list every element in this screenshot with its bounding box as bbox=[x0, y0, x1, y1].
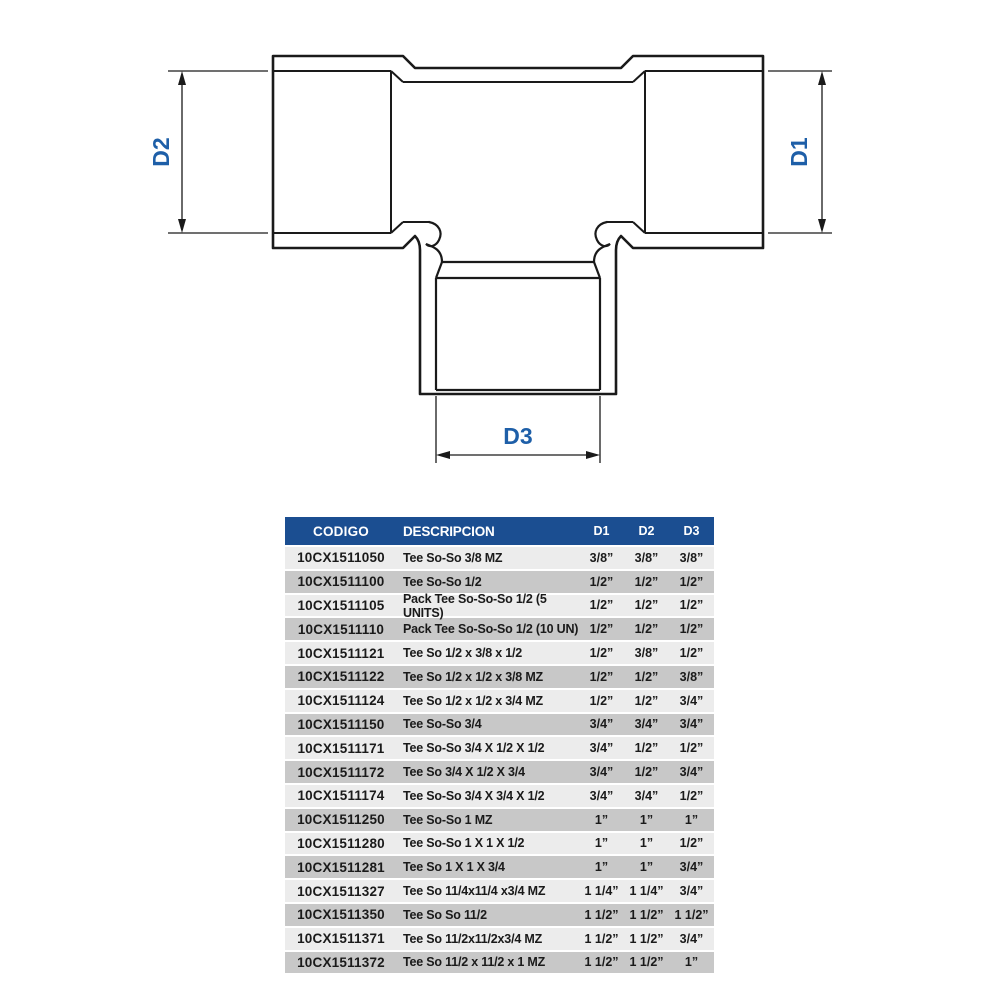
table-row: 10CX1511105 Pack Tee So-So-So 1/2 (5 UNI… bbox=[285, 595, 714, 619]
cell-d3: 3/4” bbox=[669, 884, 714, 898]
tee-fitting-diagram: D2 D1 D3 bbox=[0, 0, 1000, 500]
table-row: 10CX1511281 Tee So 1 X 1 X 3/4 1” 1” 3/4… bbox=[285, 856, 714, 880]
cell-d1: 3/8” bbox=[579, 551, 624, 565]
cell-descripcion: Pack Tee So-So-So 1/2 (10 UN) bbox=[397, 622, 579, 636]
table-row: 10CX1511122 Tee So 1/2 x 1/2 x 3/8 MZ 1/… bbox=[285, 666, 714, 690]
cell-d1: 1/2” bbox=[579, 646, 624, 660]
table-row: 10CX1511050 Tee So-So 3/8 MZ 3/8” 3/8” 3… bbox=[285, 547, 714, 571]
cell-codigo: 10CX1511172 bbox=[285, 765, 397, 780]
cell-codigo: 10CX1511371 bbox=[285, 931, 397, 946]
cell-d2: 3/8” bbox=[624, 551, 669, 565]
cell-codigo: 10CX1511372 bbox=[285, 955, 397, 970]
cell-codigo: 10CX1511281 bbox=[285, 860, 397, 875]
cell-d1: 1” bbox=[579, 860, 624, 874]
cell-d3: 1/2” bbox=[669, 789, 714, 803]
cell-d3: 3/4” bbox=[669, 860, 714, 874]
cell-d2: 1/2” bbox=[624, 575, 669, 589]
header-descripcion: DESCRIPCION bbox=[397, 524, 579, 539]
cell-d1: 3/4” bbox=[579, 789, 624, 803]
cell-d1: 1 1/2” bbox=[579, 932, 624, 946]
cell-d3: 1 1/2” bbox=[669, 908, 714, 922]
table-row: 10CX1511250 Tee So-So 1 MZ 1” 1” 1” bbox=[285, 809, 714, 833]
table-row: 10CX1511174 Tee So-So 3/4 X 3/4 X 1/2 3/… bbox=[285, 785, 714, 809]
cell-d2: 1/2” bbox=[624, 741, 669, 755]
cell-codigo: 10CX1511050 bbox=[285, 550, 397, 565]
table-row: 10CX1511172 Tee So 3/4 X 1/2 X 3/4 3/4” … bbox=[285, 761, 714, 785]
left-socket-bore bbox=[273, 71, 403, 233]
cell-d1: 3/4” bbox=[579, 717, 624, 731]
cell-d3: 1/2” bbox=[669, 836, 714, 850]
tee-outer-contour bbox=[273, 56, 763, 394]
page: D2 D1 D3 CODIGO DESCRIPCION D1 D2 D3 1 bbox=[0, 0, 1000, 1000]
cell-d2: 1/2” bbox=[624, 598, 669, 612]
cell-descripcion: Tee So-So 3/4 X 3/4 X 1/2 bbox=[397, 789, 579, 803]
cell-d2: 1 1/2” bbox=[624, 955, 669, 969]
table-row: 10CX1511280 Tee So-So 1 X 1 X 1/2 1” 1” … bbox=[285, 833, 714, 857]
cell-d3: 3/8” bbox=[669, 551, 714, 565]
cell-d2: 3/4” bbox=[624, 717, 669, 731]
cell-descripcion: Tee So-So 1/2 bbox=[397, 575, 579, 589]
cell-descripcion: Tee So 11/2 x 11/2 x 1 MZ bbox=[397, 955, 579, 969]
cell-d1: 3/4” bbox=[579, 741, 624, 755]
cell-descripcion: Tee So 1/2 x 1/2 x 3/8 MZ bbox=[397, 670, 579, 684]
cell-codigo: 10CX1511121 bbox=[285, 646, 397, 661]
cell-descripcion: Tee So-So 3/8 MZ bbox=[397, 551, 579, 565]
cell-d3: 3/4” bbox=[669, 932, 714, 946]
cell-d1: 1” bbox=[579, 813, 624, 827]
d2-dimension bbox=[168, 71, 268, 233]
table-header-row: CODIGO DESCRIPCION D1 D2 D3 bbox=[285, 517, 714, 547]
cell-d3: 1” bbox=[669, 813, 714, 827]
spec-table: CODIGO DESCRIPCION D1 D2 D3 10CX1511050 … bbox=[285, 517, 714, 975]
cell-d1: 1” bbox=[579, 836, 624, 850]
cell-descripcion: Tee So 11/4x11/4 x3/4 MZ bbox=[397, 884, 579, 898]
header-d2: D2 bbox=[624, 524, 669, 538]
header-codigo: CODIGO bbox=[285, 524, 397, 539]
cell-d3: 1” bbox=[669, 955, 714, 969]
cell-d2: 1/2” bbox=[624, 670, 669, 684]
cell-descripcion: Tee So 1 X 1 X 3/4 bbox=[397, 860, 579, 874]
cell-codigo: 10CX1511280 bbox=[285, 836, 397, 851]
cell-codigo: 10CX1511327 bbox=[285, 884, 397, 899]
table-row: 10CX1511124 Tee So 1/2 x 1/2 x 3/4 MZ 1/… bbox=[285, 690, 714, 714]
cell-d2: 1” bbox=[624, 860, 669, 874]
table-row: 10CX1511327 Tee So 11/4x11/4 x3/4 MZ 1 1… bbox=[285, 880, 714, 904]
cell-d3: 1/2” bbox=[669, 598, 714, 612]
cell-d2: 1/2” bbox=[624, 694, 669, 708]
cell-d2: 3/4” bbox=[624, 789, 669, 803]
cell-d2: 1” bbox=[624, 813, 669, 827]
cell-d3: 1/2” bbox=[669, 575, 714, 589]
crotch-curls bbox=[426, 222, 610, 262]
cell-descripcion: Pack Tee So-So-So 1/2 (5 UNITS) bbox=[397, 592, 579, 620]
cell-codigo: 10CX1511150 bbox=[285, 717, 397, 732]
cell-descripcion: Tee So So 11/2 bbox=[397, 908, 579, 922]
body-bore-lines bbox=[403, 82, 633, 222]
cell-codigo: 10CX1511250 bbox=[285, 812, 397, 827]
cell-d3: 3/4” bbox=[669, 694, 714, 708]
cell-d1: 1 1/4” bbox=[579, 884, 624, 898]
cell-codigo: 10CX1511350 bbox=[285, 907, 397, 922]
cell-d3: 1/2” bbox=[669, 646, 714, 660]
table-row: 10CX1511371 Tee So 11/2x11/2x3/4 MZ 1 1/… bbox=[285, 928, 714, 952]
cell-descripcion: Tee So 11/2x11/2x3/4 MZ bbox=[397, 932, 579, 946]
cell-d3: 1/2” bbox=[669, 741, 714, 755]
cell-descripcion: Tee So 1/2 x 1/2 x 3/4 MZ bbox=[397, 694, 579, 708]
d1-label: D1 bbox=[786, 137, 812, 167]
cell-d1: 1/2” bbox=[579, 598, 624, 612]
table-row: 10CX1511150 Tee So-So 3/4 3/4” 3/4” 3/4” bbox=[285, 714, 714, 738]
cell-d3: 3/4” bbox=[669, 765, 714, 779]
cell-codigo: 10CX1511174 bbox=[285, 788, 397, 803]
cell-d1: 1/2” bbox=[579, 575, 624, 589]
cell-descripcion: Tee So-So 1 X 1 X 1/2 bbox=[397, 836, 579, 850]
cell-d1: 1/2” bbox=[579, 670, 624, 684]
cell-d2: 1 1/2” bbox=[624, 932, 669, 946]
cell-descripcion: Tee So-So 3/4 X 1/2 X 1/2 bbox=[397, 741, 579, 755]
header-d3: D3 bbox=[669, 524, 714, 538]
cell-d1: 1 1/2” bbox=[579, 955, 624, 969]
cell-d3: 3/4” bbox=[669, 717, 714, 731]
cell-codigo: 10CX1511105 bbox=[285, 598, 397, 613]
cell-descripcion: Tee So 1/2 x 3/8 x 1/2 bbox=[397, 646, 579, 660]
cell-d3: 1/2” bbox=[669, 622, 714, 636]
cell-d1: 1/2” bbox=[579, 694, 624, 708]
table-row: 10CX1511372 Tee So 11/2 x 11/2 x 1 MZ 1 … bbox=[285, 952, 714, 976]
cell-d1: 3/4” bbox=[579, 765, 624, 779]
cell-codigo: 10CX1511124 bbox=[285, 693, 397, 708]
cell-d2: 1 1/4” bbox=[624, 884, 669, 898]
d3-label: D3 bbox=[503, 423, 532, 449]
table-row: 10CX1511121 Tee So 1/2 x 3/8 x 1/2 1/2” … bbox=[285, 642, 714, 666]
cell-d2: 1” bbox=[624, 836, 669, 850]
right-socket-bore bbox=[633, 71, 763, 233]
table-row: 10CX1511350 Tee So So 11/2 1 1/2” 1 1/2”… bbox=[285, 904, 714, 928]
cell-descripcion: Tee So-So 1 MZ bbox=[397, 813, 579, 827]
table-body: 10CX1511050 Tee So-So 3/8 MZ 3/8” 3/8” 3… bbox=[285, 547, 714, 975]
cell-descripcion: Tee So-So 3/4 bbox=[397, 717, 579, 731]
cell-d2: 1/2” bbox=[624, 622, 669, 636]
table-row: 10CX1511171 Tee So-So 3/4 X 1/2 X 1/2 3/… bbox=[285, 737, 714, 761]
bottom-socket-cavity bbox=[436, 262, 600, 390]
header-d1: D1 bbox=[579, 524, 624, 538]
cell-codigo: 10CX1511100 bbox=[285, 574, 397, 589]
cell-d2: 1/2” bbox=[624, 765, 669, 779]
cell-codigo: 10CX1511171 bbox=[285, 741, 397, 756]
cell-codigo: 10CX1511122 bbox=[285, 669, 397, 684]
cell-d2: 3/8” bbox=[624, 646, 669, 660]
cell-codigo: 10CX1511110 bbox=[285, 622, 397, 637]
cell-d3: 3/8” bbox=[669, 670, 714, 684]
table-row: 10CX1511110 Pack Tee So-So-So 1/2 (10 UN… bbox=[285, 618, 714, 642]
cell-d2: 1 1/2” bbox=[624, 908, 669, 922]
d2-label: D2 bbox=[148, 137, 174, 166]
cell-descripcion: Tee So 3/4 X 1/2 X 3/4 bbox=[397, 765, 579, 779]
cell-d1: 1 1/2” bbox=[579, 908, 624, 922]
cell-d1: 1/2” bbox=[579, 622, 624, 636]
